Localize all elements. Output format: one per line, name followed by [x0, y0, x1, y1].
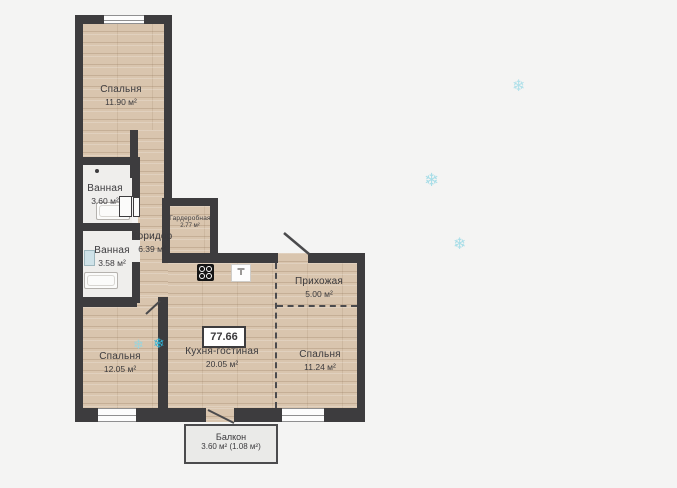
wall	[75, 15, 83, 422]
wall-kitchen-top	[162, 253, 278, 263]
window	[282, 408, 324, 422]
entry-door-swing	[284, 233, 309, 254]
snowflake-icon: ❄	[153, 337, 165, 351]
shower-tub-icon	[84, 272, 118, 289]
stove-icon	[197, 264, 214, 281]
dashed-divider-horizontal	[277, 305, 357, 307]
room-area: 6.39 м²	[132, 244, 173, 255]
room-name: Кухня-гостиная	[185, 346, 259, 359]
snowflake-icon: ❄	[453, 236, 466, 252]
room-name: Прихожая	[295, 276, 343, 289]
room-label-bedroom-top: Спальня 11.90 м²	[100, 84, 142, 107]
room-area: 11.24 м²	[299, 362, 341, 373]
room-name: Ванная	[94, 245, 129, 258]
room-area: 2.77 м²	[169, 223, 211, 231]
room-area: 3.60 м²	[87, 196, 122, 207]
window	[98, 408, 136, 422]
threshold-bedroom-left	[137, 297, 158, 307]
room-name: Ванная	[87, 183, 122, 196]
room-label-bathroom-2: Ванная 3.58 м²	[94, 245, 129, 268]
room-area: 3.60 м² (1.08 м²)	[186, 442, 276, 451]
room-label-wardrobe: Гардеробная 2.77 м²	[169, 215, 211, 231]
room-label-bathroom-1: Ванная 3.60 м²	[87, 183, 122, 206]
snowflake-icon: ❄	[512, 78, 525, 94]
floor-plan: ❄ ❄ ❄	[0, 0, 677, 488]
dashed-divider-vertical	[275, 263, 277, 408]
room-area: 11.90 м²	[100, 97, 142, 108]
wall	[132, 157, 140, 197]
room-area: 3.58 м²	[94, 258, 129, 269]
total-area-badge: 77.66	[202, 326, 246, 348]
snowflake-icon: ❄	[424, 172, 439, 190]
wall-wardrobe	[210, 198, 218, 253]
room-area: 5.00 м²	[295, 289, 343, 300]
wall-bottom	[234, 408, 282, 422]
room-label-corridor: Коридор 6.39 м²	[132, 231, 173, 254]
wall-bottom	[324, 408, 365, 422]
wall	[158, 297, 168, 412]
room-name: Коридор	[132, 231, 173, 244]
wall	[164, 15, 172, 200]
room-name: Спальня	[100, 84, 142, 97]
fixture-dot	[95, 169, 99, 173]
kitchen-sink-icon	[231, 264, 251, 282]
room-name: Спальня	[99, 351, 141, 364]
balcony: Балкон 3.60 м² (1.08 м²)	[184, 424, 278, 464]
wall-right	[357, 253, 365, 422]
bathroom-door-frame	[133, 197, 140, 217]
room-area: 12.05 м²	[99, 364, 141, 375]
room-label-hallway: Прихожая 5.00 м²	[295, 276, 343, 299]
room-name: Спальня	[299, 349, 341, 362]
threshold-balcony	[206, 408, 234, 422]
room-label-bedroom-right: Спальня 11.24 м²	[299, 349, 341, 372]
wall-bottom	[75, 408, 98, 422]
room-name: Гардеробная	[169, 215, 211, 223]
room-label-bedroom-left: Спальня 12.05 м²	[99, 351, 141, 374]
wall-bottom	[136, 408, 206, 422]
window	[104, 15, 144, 24]
wall	[75, 157, 132, 165]
room-area: 20.05 м²	[185, 359, 259, 370]
room-name: Балкон	[186, 432, 276, 442]
wall	[75, 297, 137, 307]
threshold-entry	[278, 253, 308, 263]
room-label-kitchen-living: Кухня-гостиная 20.05 м²	[185, 346, 259, 369]
wall	[75, 223, 135, 231]
